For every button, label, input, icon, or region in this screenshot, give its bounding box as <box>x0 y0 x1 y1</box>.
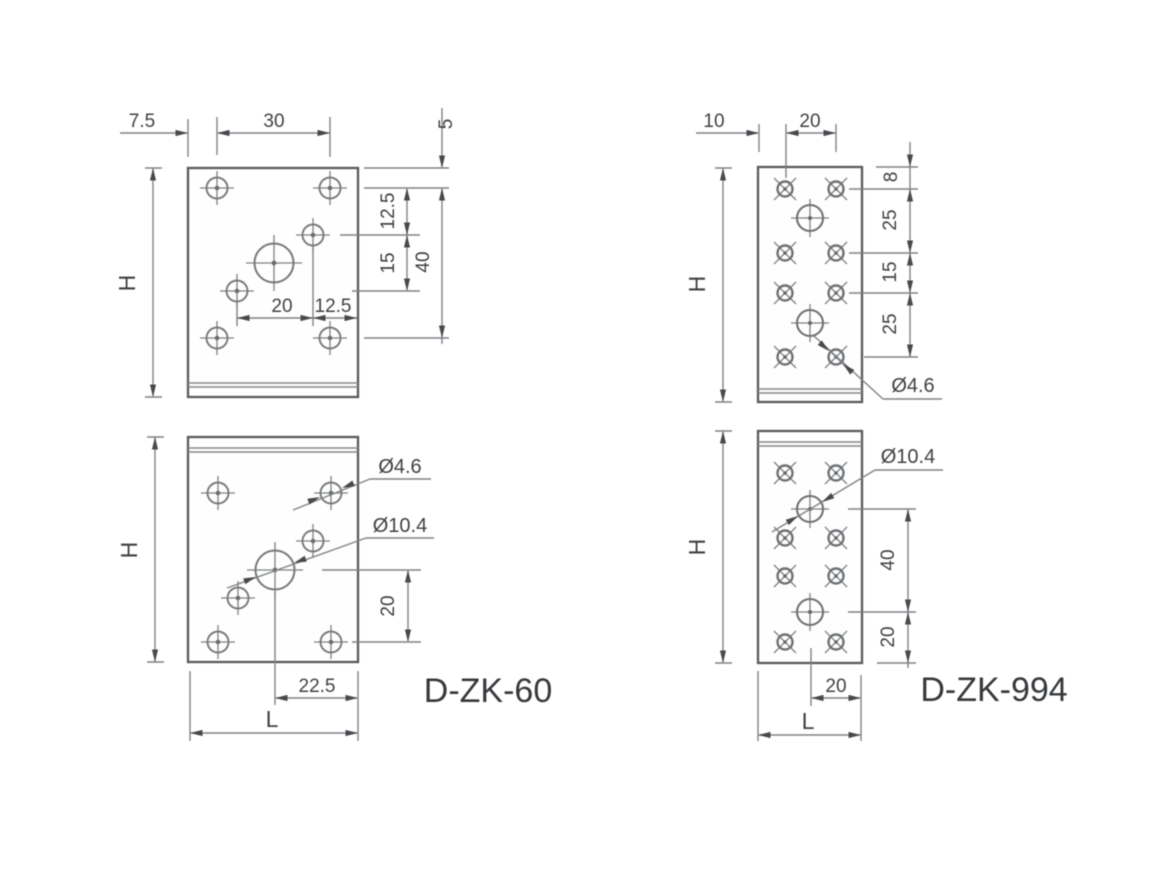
small-hole <box>825 282 847 304</box>
dim-label: 40 <box>413 251 434 272</box>
diameter-label: Ø10.4 <box>881 446 935 468</box>
dim-arrow <box>758 732 771 738</box>
dim-arrow <box>907 189 913 202</box>
dim-arrow <box>720 431 726 444</box>
dim-label: L <box>266 706 279 732</box>
dim-arrow <box>849 695 862 701</box>
diameter-label: Ø4.6 <box>891 375 934 397</box>
dim-arrow <box>907 281 913 294</box>
dim-label: 5 <box>436 119 457 130</box>
dim-label: 20 <box>878 626 899 647</box>
dim-arrow <box>150 385 156 398</box>
dim-label: 22.5 <box>299 676 336 697</box>
dim-arrow <box>786 130 799 136</box>
dim-label: 15 <box>378 252 399 273</box>
dim-label: 20 <box>271 296 292 317</box>
dim-arrow <box>404 188 410 201</box>
small-hole <box>825 242 847 264</box>
view-dzk60-front: H Ø4.6 Ø10.4 20 22.5 L <box>116 437 434 741</box>
dim-arrow <box>404 223 410 236</box>
dim-arrow <box>346 695 359 701</box>
dim-arrow <box>404 235 410 248</box>
dim-arrow <box>905 651 911 664</box>
dim-label: H <box>684 276 710 293</box>
dim-label: 8 <box>881 172 902 183</box>
dim-label: 12.5 <box>378 193 399 230</box>
small-hole <box>825 565 847 587</box>
dim-arrow <box>439 326 445 339</box>
part-label-dzk994: D-ZK-994 <box>920 671 1067 709</box>
small-hole <box>774 346 796 368</box>
diameter-label: Ø4.6 <box>378 456 421 478</box>
view-dzk994-top: 10 20 8 25 15 25 H Ø4.6 <box>684 111 942 402</box>
small-hole <box>774 631 796 653</box>
dim-label: H <box>114 275 140 292</box>
dim-arrow <box>720 168 726 181</box>
dim-arrow <box>176 130 189 136</box>
dim-arrow <box>905 509 911 522</box>
dim-label: 7.5 <box>129 111 155 132</box>
dim-label: 10 <box>703 111 724 132</box>
dim-label: 20 <box>378 595 399 616</box>
dim-arrow <box>275 695 288 701</box>
dim-label: H <box>684 539 710 556</box>
dim-label: 20 <box>799 111 820 132</box>
small-hole <box>825 527 847 549</box>
dim-arrow <box>318 130 331 136</box>
dim-arrow <box>824 130 837 136</box>
dim-label: H <box>116 542 142 559</box>
dim-label: L <box>802 708 815 734</box>
small-hole <box>825 178 847 200</box>
dim-arrow <box>905 612 911 625</box>
dim-label: 30 <box>263 111 284 132</box>
dim-arrow <box>346 730 359 736</box>
dim-arrow <box>152 437 158 450</box>
part-label-dzk60: D-ZK-60 <box>424 672 552 710</box>
technical-drawing-page: 7.5 30 5 12.5 15 40 20 12.5 <box>0 0 1170 878</box>
small-hole <box>774 282 796 304</box>
dim-label: 15 <box>880 261 901 282</box>
dim-arrow <box>404 279 410 292</box>
dim-arrow <box>720 390 726 403</box>
dim-arrow <box>150 168 156 181</box>
dim-arrow <box>905 600 911 613</box>
dim-arrow <box>907 241 913 254</box>
dim-label: 40 <box>878 549 899 570</box>
view-dzk994-front: H Ø10.4 40 20 20 L <box>684 431 943 741</box>
dim-arrow <box>439 188 445 201</box>
dim-label: 25 <box>880 209 901 230</box>
dim-label: 25 <box>880 313 901 334</box>
small-hole <box>774 178 796 200</box>
dim-arrow <box>439 156 445 169</box>
small-hole <box>825 462 847 484</box>
dim-arrow <box>405 570 411 583</box>
dim-arrow <box>720 651 726 664</box>
small-hole <box>774 462 796 484</box>
dim-arrow <box>190 730 203 736</box>
small-hole <box>774 242 796 264</box>
small-hole <box>774 565 796 587</box>
dim-arrow <box>907 345 913 358</box>
dim-arrow <box>405 630 411 643</box>
dim-label: 12.5 <box>315 296 352 317</box>
dim-arrow <box>907 293 913 306</box>
dim-arrow <box>217 130 230 136</box>
technical-drawing-canvas: 7.5 30 5 12.5 15 40 20 12.5 <box>0 0 1170 878</box>
diameter-label: Ø10.4 <box>373 515 427 537</box>
dim-arrow <box>747 130 760 136</box>
small-hole <box>825 631 847 653</box>
small-hole <box>774 527 796 549</box>
dim-arrow <box>849 732 862 738</box>
dim-arrow <box>811 695 824 701</box>
view-dzk60-top: 7.5 30 5 12.5 15 40 20 12.5 <box>114 108 457 397</box>
dim-label: 20 <box>825 676 846 697</box>
dim-arrow <box>907 253 913 266</box>
dim-arrow <box>907 155 913 168</box>
dim-arrow <box>152 650 158 663</box>
